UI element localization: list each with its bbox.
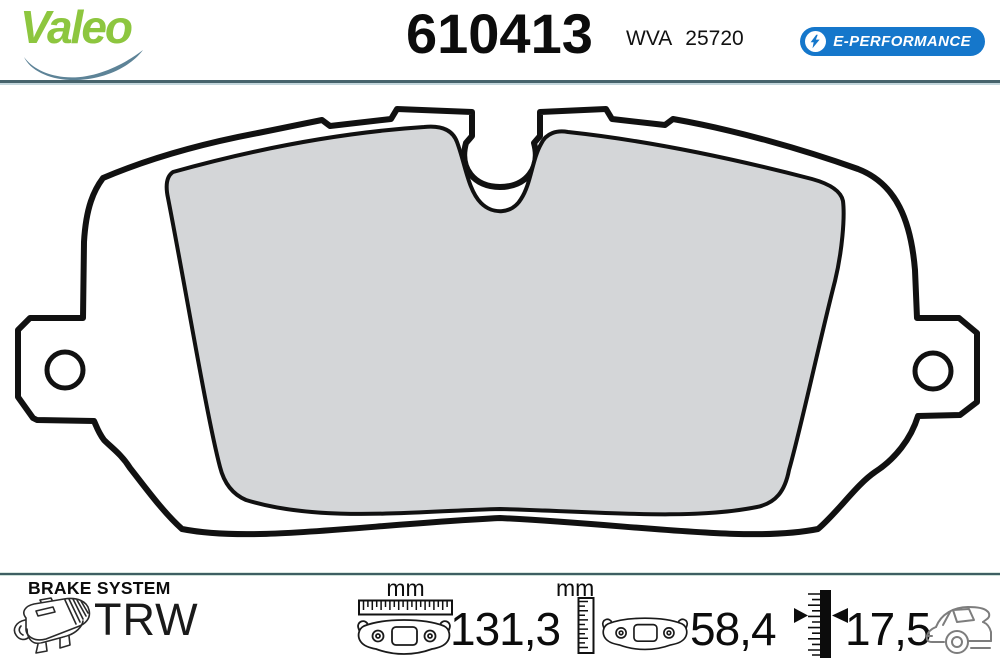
trw-logo: TRW (94, 597, 199, 642)
height-value: 58,4 (690, 606, 776, 652)
thickness-value: 17,5 (845, 606, 931, 652)
badge-label: E-PERFORMANCE (833, 33, 971, 50)
header: Valeo 610413 WVA 25720 E-PERFORMANCE (0, 0, 1000, 80)
lightning-bolt-icon (805, 31, 826, 52)
right-ear-hole (915, 353, 951, 389)
ruler-vertical-icon (577, 597, 595, 654)
product-card: Valeo 610413 WVA 25720 E-PERFORMANCE (0, 0, 1000, 666)
width-unit-label: mm (358, 575, 453, 602)
footer-divider-shadow (0, 575, 1000, 576)
left-ear-hole (47, 352, 83, 388)
pad-front-icon-width (354, 613, 454, 657)
part-number: 610413 (406, 6, 593, 62)
wva-reference: WVA 25720 (626, 27, 744, 51)
valeo-wordmark: Valeo (20, 4, 170, 50)
valeo-swoosh-icon (24, 50, 146, 80)
pad-front-icon-height (599, 611, 691, 653)
brake-pad-drawing (0, 88, 1000, 573)
brake-caliper-icon (8, 596, 103, 662)
valeo-logo: Valeo (20, 4, 170, 80)
wva-number: 25720 (685, 27, 743, 51)
width-value: 131,3 (450, 606, 560, 652)
e-performance-badge: E-PERFORMANCE (800, 27, 985, 56)
header-divider-shadow (0, 83, 1000, 85)
wva-label: WVA (626, 27, 672, 51)
thickness-gauge-icon (793, 588, 849, 661)
rear-axle-car-icon (924, 596, 994, 658)
